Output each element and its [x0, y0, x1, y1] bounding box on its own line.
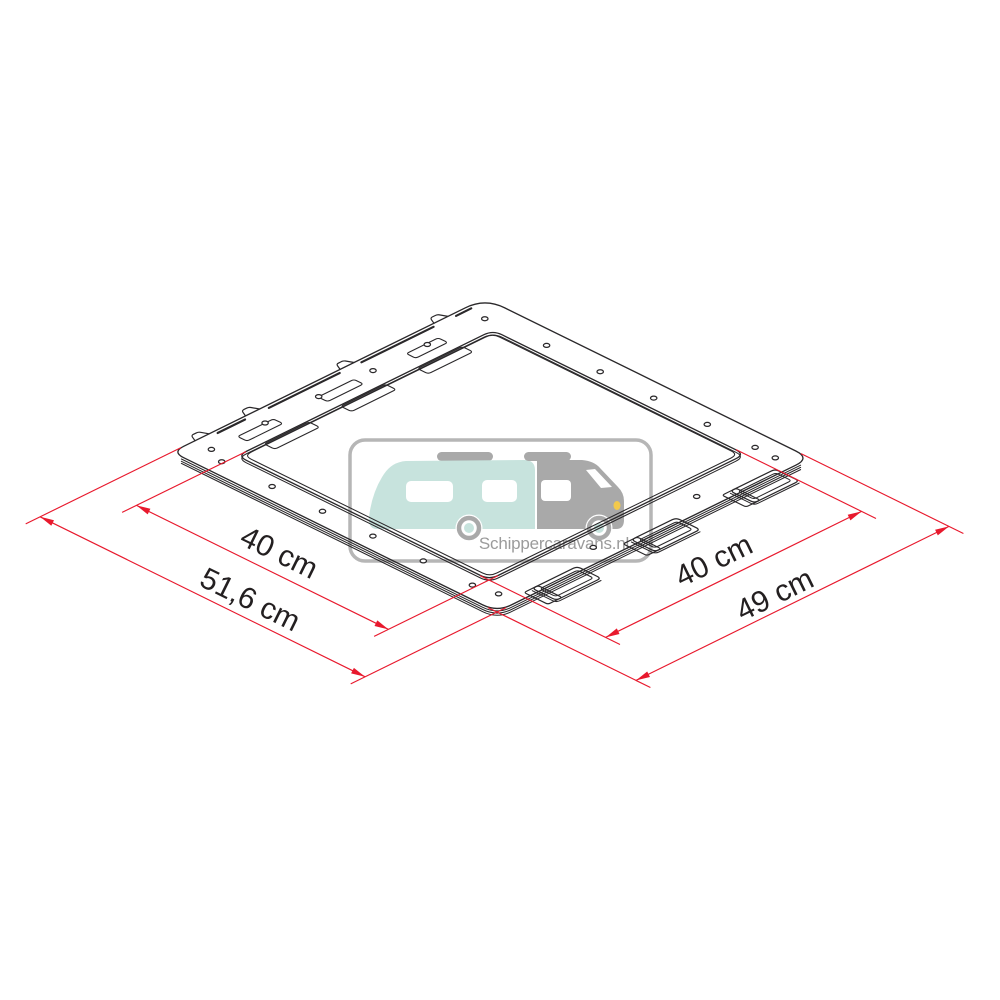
- screw-hole: [772, 456, 778, 460]
- caravan-silhouette: [369, 452, 535, 542]
- watermark: Schippercaravans.nl: [350, 440, 651, 561]
- frame-notch: [243, 407, 260, 416]
- frame-bevel-line: [218, 420, 246, 434]
- screw-hole: [651, 396, 657, 400]
- dimension-line-right-inner: [606, 511, 862, 637]
- screw-hole: [316, 395, 322, 399]
- extension-line-left-outer: [26, 448, 181, 524]
- frame-bevel-line: [456, 308, 471, 316]
- extension-line-left-outer: [351, 608, 506, 684]
- dimension-line-left-outer: [40, 517, 365, 677]
- dimension-arrow: [40, 517, 54, 526]
- dimension-arrow: [137, 505, 151, 514]
- mounting-rail-inner: [541, 571, 592, 596]
- screw-hole: [694, 495, 700, 499]
- caravan-window-2: [482, 480, 517, 502]
- hinge-tab: [419, 347, 472, 373]
- mounting-rail: [534, 567, 599, 599]
- screw-hole: [269, 485, 275, 489]
- screw-hole: [208, 447, 214, 451]
- screw-hole: [370, 534, 376, 538]
- screw-hole: [704, 422, 710, 426]
- dimension-label-right-outer: 49 cm: [731, 562, 819, 628]
- screw-hole: [482, 317, 488, 321]
- screw-hole: [424, 343, 430, 347]
- screw-hole: [597, 370, 603, 374]
- frame-bevel-line: [361, 327, 433, 363]
- hinge-tab: [265, 423, 318, 449]
- motorhome-headlight: [614, 501, 621, 510]
- rooflight-frame-diagram: Schippercaravans.nl 40 cm 51,6 cm 40 cm …: [0, 0, 1000, 1000]
- dimension-arrow: [375, 620, 389, 629]
- dimension-arrow: [636, 672, 650, 681]
- dimension-arrow: [935, 526, 949, 535]
- caravan-wheel-hub: [464, 523, 474, 533]
- screw-hole: [590, 545, 596, 549]
- screw-hole: [495, 592, 501, 596]
- motorhome-window: [541, 480, 571, 501]
- mounting-rail: [633, 519, 698, 551]
- caravan-window-1: [406, 481, 453, 502]
- caravan-roofbox-icon: [437, 452, 493, 461]
- frame-notch: [431, 315, 448, 324]
- dimension-arrow: [606, 628, 620, 637]
- screw-hole: [543, 343, 549, 347]
- motorhome-silhouette: [524, 452, 624, 542]
- frame-notch: [192, 432, 209, 441]
- mounting-rail-inner: [640, 522, 691, 547]
- screw-hole: [752, 445, 758, 449]
- mounting-rail-inner: [739, 474, 790, 499]
- screw-hole: [420, 559, 426, 563]
- screw-hole: [370, 369, 376, 373]
- diagram-canvas: Schippercaravans.nl 40 cm 51,6 cm 40 cm …: [0, 0, 1000, 1000]
- frame-notch: [337, 361, 354, 369]
- motorhome-roofbox-icon: [524, 452, 571, 461]
- hinge-tab: [342, 385, 395, 411]
- dimension-arrow: [351, 668, 365, 677]
- dimension-arrow: [848, 511, 862, 520]
- frame-bevel-line: [269, 373, 340, 408]
- screw-hole: [262, 421, 268, 425]
- screw-hole: [319, 509, 325, 513]
- flange-slot: [408, 339, 447, 358]
